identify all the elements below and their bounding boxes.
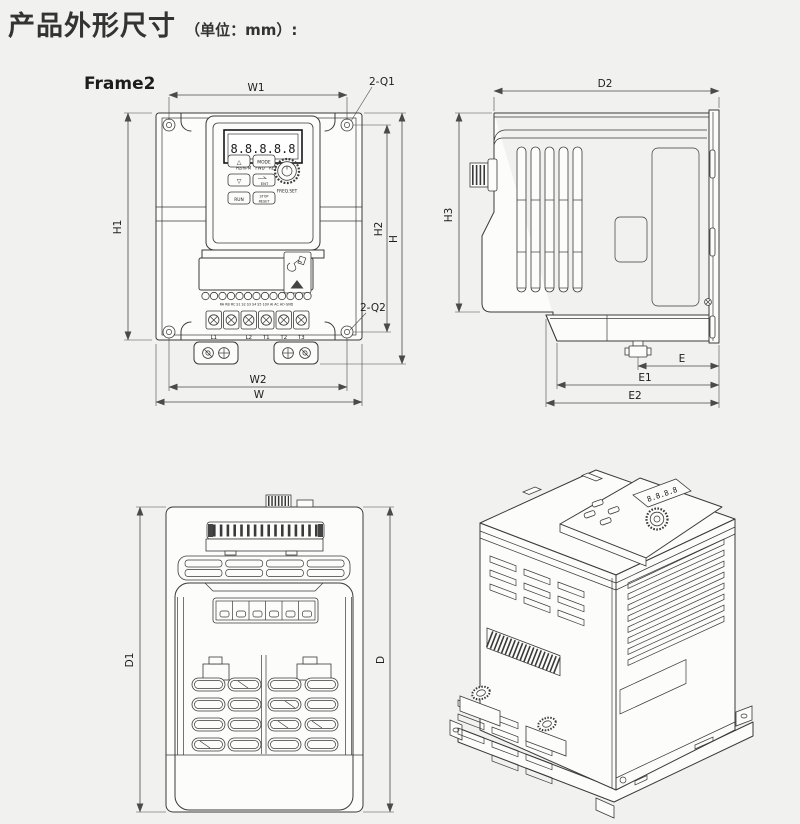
front-view: 8.8.8.8.8 Hz/RPM FWD REV RUN △ MODE ▽ EN…	[95, 72, 440, 422]
bottom-body	[166, 495, 363, 812]
dim-d2-label: D2	[598, 78, 613, 90]
page: { "page": { "title": "产品外形尺寸", "unit_not…	[0, 0, 800, 824]
keypad: 8.8.8.8.8 Hz/RPM FWD REV RUN △ MODE ▽ EN…	[202, 116, 324, 258]
dim-h1-label: H1	[112, 220, 124, 235]
back-screw	[705, 299, 712, 306]
dim-w1-label: W1	[247, 82, 264, 94]
display-digits: 8.8.8.8.8	[230, 142, 295, 156]
run-button: RUN	[234, 197, 244, 203]
terminal-label-L2: L2	[245, 335, 252, 341]
stop-button-line2: RESET	[259, 199, 271, 203]
page-header: 产品外形尺寸 （单位：mm）:	[8, 4, 297, 43]
bottom-feet	[194, 342, 318, 364]
stop-button-line1: STOP	[260, 195, 269, 199]
knob-label: FREQ.SET	[277, 189, 298, 194]
dim-h2-label: H2	[373, 222, 385, 237]
dim-w2-label: W2	[249, 374, 266, 386]
dim-w-label: W	[254, 389, 265, 401]
side-body	[470, 110, 719, 357]
up-button: △	[237, 159, 242, 166]
terminal-label-L1: L1	[210, 335, 217, 341]
dim-e2-label: E2	[628, 390, 641, 402]
slot-vent-panel	[178, 556, 350, 580]
ent-button: ENT	[261, 181, 269, 186]
page-title: 产品外形尺寸	[8, 11, 176, 42]
dim-h-label: H	[388, 235, 400, 243]
terminal-bolt	[625, 341, 651, 357]
terminal-label-T3: T3	[297, 335, 305, 341]
dim-q2-label: 2-Q2	[360, 302, 386, 314]
bottom-view: D1 D	[95, 462, 430, 822]
dim-e1-label: E1	[638, 372, 651, 384]
control-terminal-labels: RA RB RC S1 S2 S3 S4 S5 10V AI AC AO GND	[220, 303, 294, 307]
terminal-cover	[199, 252, 313, 293]
dim-h3-label: H3	[443, 208, 455, 223]
dim-q1-label: 2-Q1	[369, 76, 395, 88]
terminal-label-T1: T1	[262, 335, 270, 341]
knob-side	[470, 159, 497, 191]
isometric-view: 8.8.8.8	[440, 440, 800, 824]
terminal-label-T2: T2	[279, 335, 287, 341]
dim-d1-label: D1	[124, 653, 136, 668]
down-button: ▽	[237, 178, 242, 185]
unit-note: （单位：mm）:	[185, 21, 297, 39]
mode-button: MODE	[257, 159, 271, 165]
comb-vent	[206, 522, 324, 555]
side-view: D2 H3 E E1 E2	[432, 72, 800, 422]
dim-d-label: D	[375, 656, 387, 664]
dim-e-label: E	[679, 353, 686, 365]
six-pole-terminal	[213, 598, 318, 623]
